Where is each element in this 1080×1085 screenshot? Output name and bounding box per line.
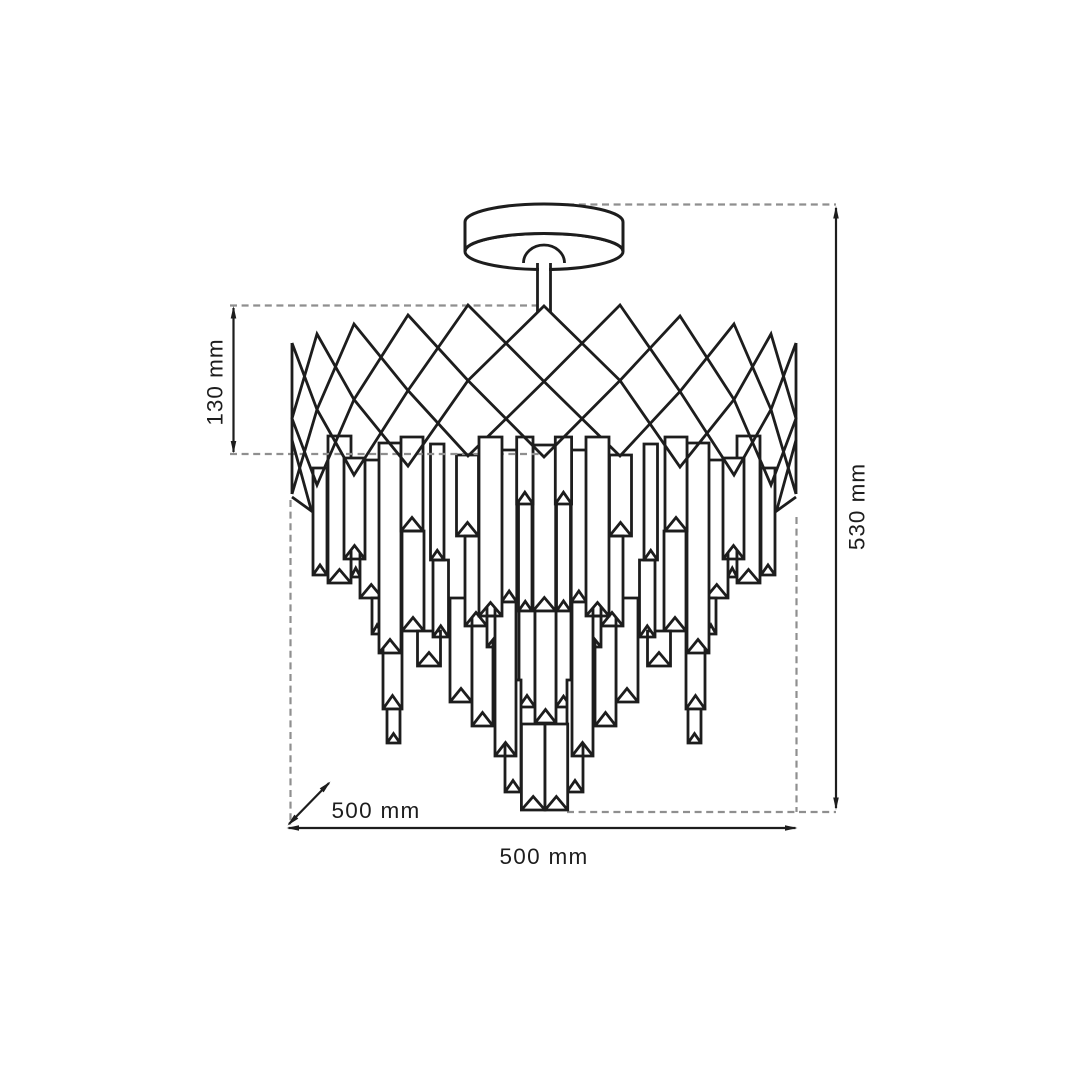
svg-text:500 mm: 500 mm xyxy=(331,798,420,823)
svg-text:130 mm: 130 mm xyxy=(203,338,228,425)
svg-text:530 mm: 530 mm xyxy=(845,463,870,550)
svg-text:500 mm: 500 mm xyxy=(499,844,588,869)
